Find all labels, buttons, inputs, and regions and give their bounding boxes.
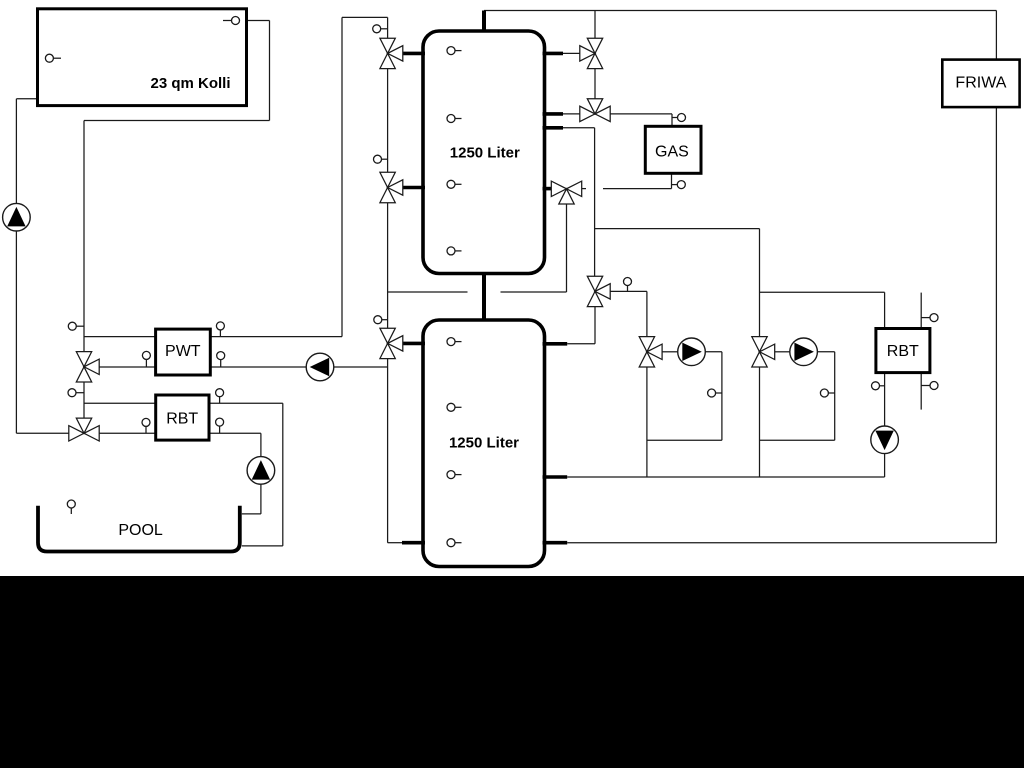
svg-text:1250 Liter: 1250 Liter: [450, 145, 520, 162]
svg-text:23 qm Kolli: 23 qm Kolli: [150, 75, 230, 92]
svg-text:RBT: RBT: [166, 411, 198, 428]
svg-text:1250 Liter: 1250 Liter: [449, 435, 519, 452]
svg-text:PWT: PWT: [165, 343, 201, 360]
svg-text:POOL: POOL: [118, 522, 163, 539]
svg-text:GAS: GAS: [655, 143, 689, 160]
svg-text:RBT: RBT: [887, 343, 919, 360]
svg-text:FRIWA: FRIWA: [955, 75, 1006, 92]
